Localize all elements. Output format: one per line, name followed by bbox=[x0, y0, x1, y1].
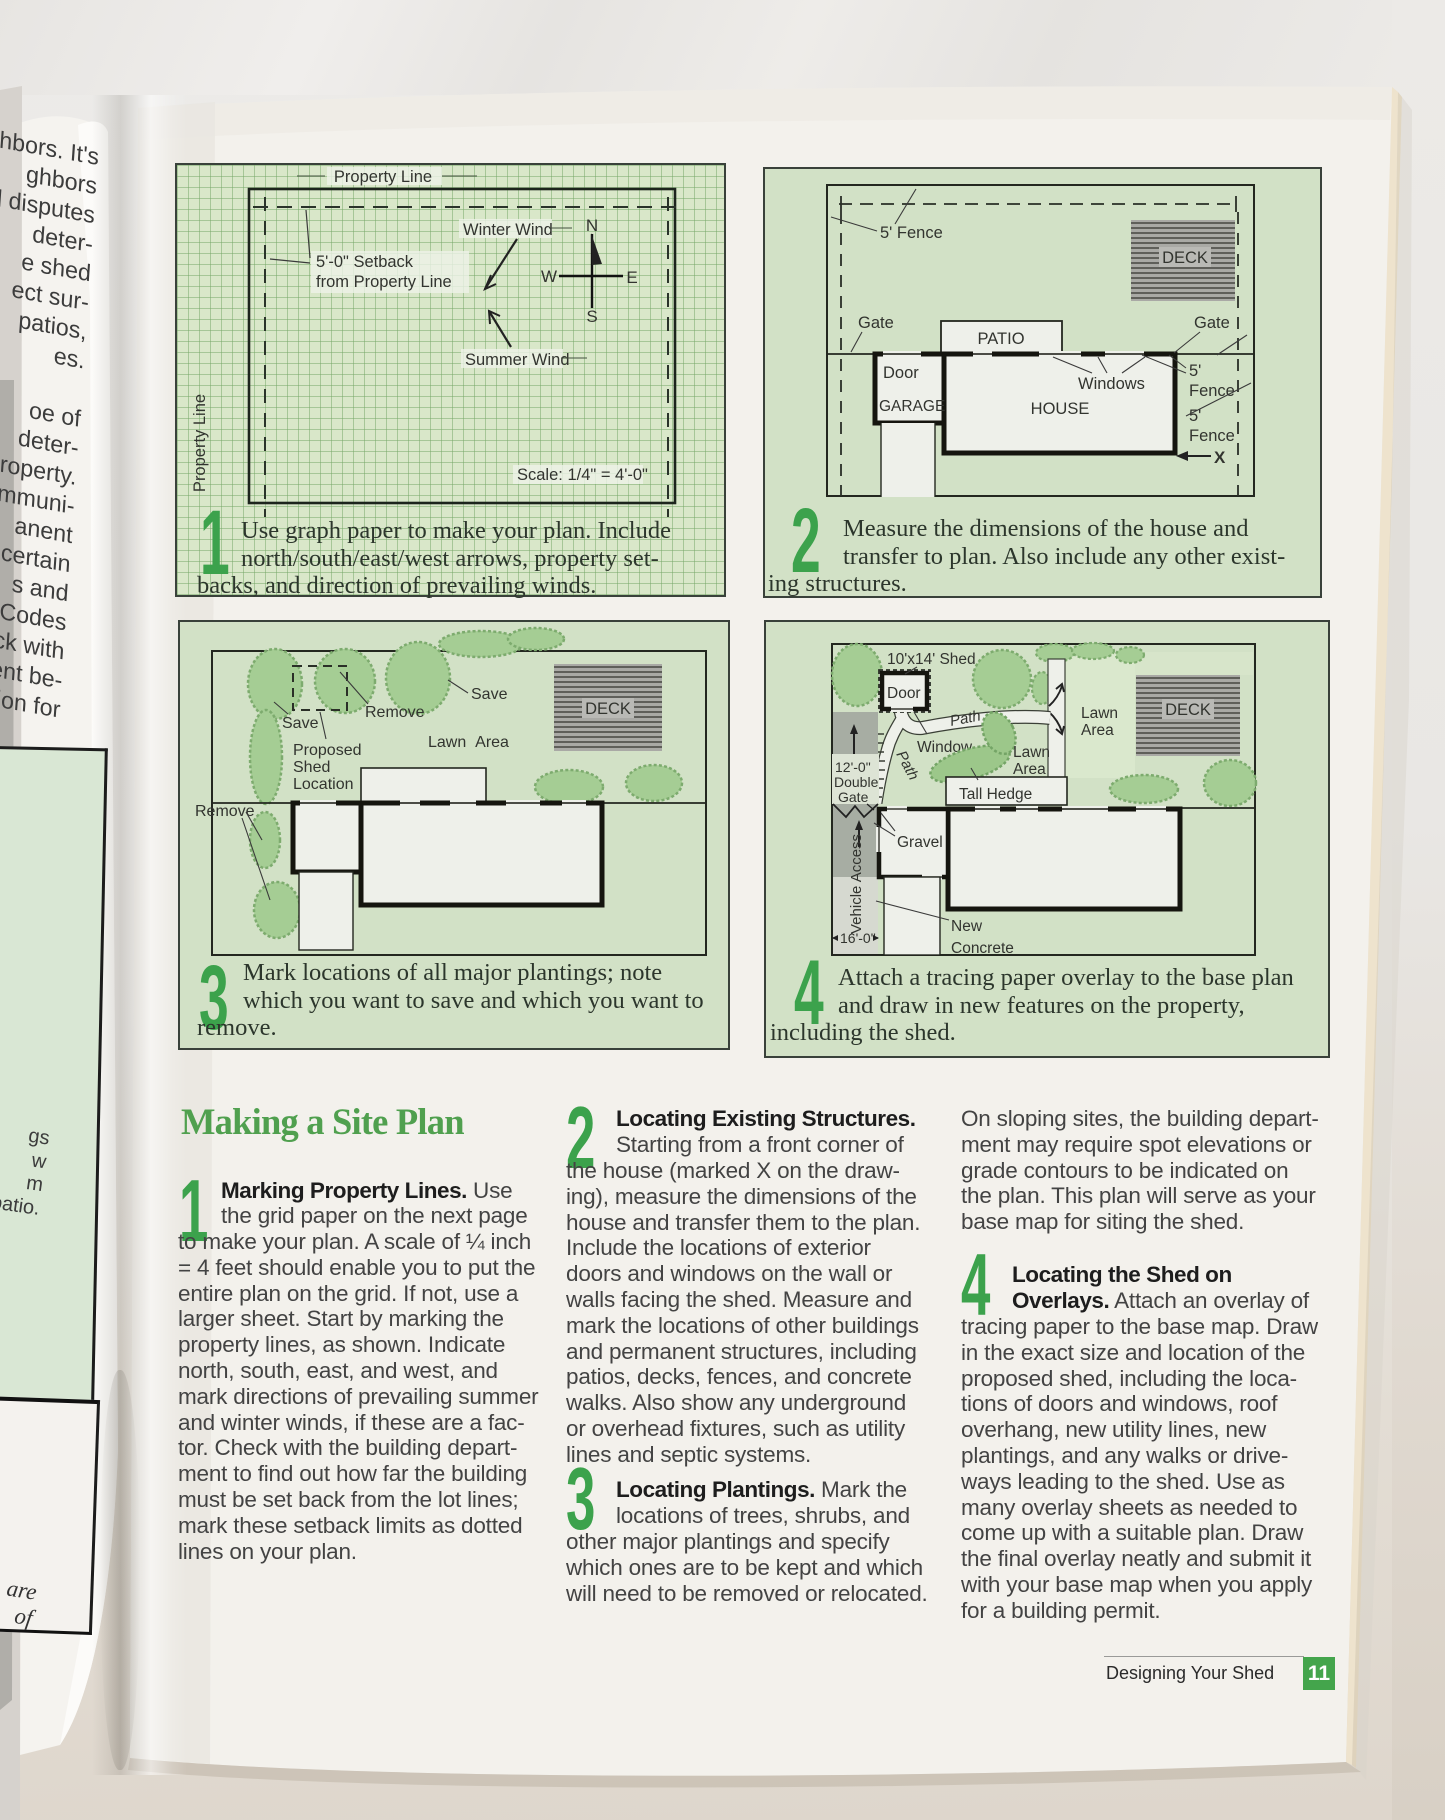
svg-text:Scale: 1/4" = 4'-0": Scale: 1/4" = 4'-0" bbox=[517, 466, 648, 484]
svg-text:X: X bbox=[1214, 448, 1226, 467]
svg-text:Windows: Windows bbox=[1078, 375, 1145, 393]
svg-text:Double: Double bbox=[834, 774, 879, 790]
svg-text:Shed: Shed bbox=[293, 759, 330, 776]
svg-text:5'-0" Setback: 5'-0" Setback bbox=[316, 253, 414, 271]
svg-text:PATIO: PATIO bbox=[977, 330, 1024, 348]
svg-text:Lawn: Lawn bbox=[1013, 744, 1050, 761]
svg-text:Tall Hedge: Tall Hedge bbox=[959, 786, 1032, 803]
svg-text:Vehicle Access: Vehicle Access bbox=[848, 834, 865, 934]
svg-text:Fence: Fence bbox=[1189, 427, 1235, 445]
svg-text:Summer Wind: Summer Wind bbox=[465, 351, 570, 369]
svg-text:N: N bbox=[586, 216, 598, 235]
svg-text:Save: Save bbox=[471, 686, 508, 703]
svg-text:DECK: DECK bbox=[585, 700, 631, 718]
svg-text:Property Line: Property Line bbox=[191, 394, 209, 492]
svg-text:GARAGE: GARAGE bbox=[879, 398, 945, 415]
svg-text:Remove: Remove bbox=[195, 803, 255, 820]
svg-text:5' Fence: 5' Fence bbox=[880, 224, 943, 242]
svg-text:DECK: DECK bbox=[1165, 701, 1211, 719]
svg-text:Gate: Gate bbox=[838, 789, 869, 805]
svg-text:E: E bbox=[626, 268, 637, 287]
svg-text:Save: Save bbox=[282, 715, 319, 732]
svg-text:5': 5' bbox=[1189, 362, 1201, 380]
svg-text:12'-0": 12'-0" bbox=[835, 759, 871, 775]
svg-text:Proposed: Proposed bbox=[293, 742, 362, 759]
svg-text:10'x14' Shed: 10'x14' Shed bbox=[887, 651, 976, 668]
svg-text:Gate: Gate bbox=[858, 314, 894, 332]
svg-text:DECK: DECK bbox=[1162, 249, 1208, 267]
svg-text:HOUSE: HOUSE bbox=[1031, 400, 1090, 418]
svg-text:Property Line: Property Line bbox=[334, 168, 432, 186]
svg-text:Area: Area bbox=[1013, 761, 1046, 778]
svg-text:Lawn Area: Lawn Area bbox=[428, 734, 509, 751]
svg-text:Fence: Fence bbox=[1189, 382, 1235, 400]
svg-text:Concrete: Concrete bbox=[951, 940, 1014, 957]
svg-text:from Property Line: from Property Line bbox=[316, 273, 452, 291]
svg-text:S: S bbox=[586, 307, 597, 326]
svg-text:Location: Location bbox=[293, 776, 354, 793]
svg-text:Lawn: Lawn bbox=[1081, 705, 1118, 722]
svg-text:Gravel: Gravel bbox=[897, 834, 943, 851]
svg-text:Winter Wind: Winter Wind bbox=[463, 221, 553, 239]
svg-text:Door: Door bbox=[883, 364, 919, 382]
svg-text:Remove: Remove bbox=[365, 704, 425, 721]
svg-text:Gate: Gate bbox=[1194, 314, 1230, 332]
svg-text:Door: Door bbox=[887, 685, 921, 702]
svg-text:Area: Area bbox=[1081, 722, 1114, 739]
svg-text:New: New bbox=[951, 918, 983, 935]
svg-text:W: W bbox=[541, 267, 557, 286]
